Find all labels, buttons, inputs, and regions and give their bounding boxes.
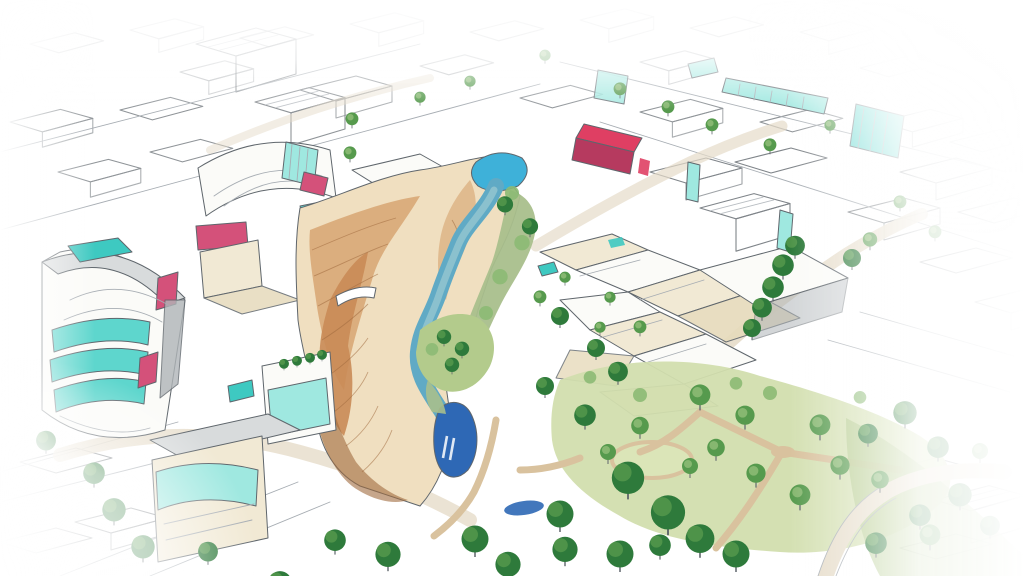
- tree-icon: [894, 195, 907, 211]
- tree-icon: [426, 343, 439, 356]
- tree-icon: [462, 526, 489, 558]
- glass-galleria-strip: [594, 58, 904, 252]
- tree-icon: [824, 120, 835, 134]
- tree-icon: [559, 272, 570, 286]
- left-curved-tower: [42, 238, 185, 438]
- tree-icon: [730, 377, 743, 390]
- plaza: [771, 446, 795, 458]
- tree-icon: [83, 462, 105, 487]
- tree-icon: [514, 235, 529, 250]
- pond-glimpse: [503, 498, 545, 517]
- concept-rendering: Hand-drawn aerial concept sketch: urban …: [0, 0, 1024, 576]
- tree-icon: [929, 225, 942, 241]
- tree-icon: [534, 290, 547, 306]
- village-pool-icon: [538, 262, 558, 276]
- tree-icon: [344, 146, 357, 162]
- tree-icon: [198, 542, 218, 565]
- tree-icon: [552, 537, 577, 566]
- tree-icon: [492, 269, 507, 284]
- tree-icon: [584, 371, 597, 384]
- block-row-far: [30, 9, 1024, 95]
- tree-icon: [36, 431, 56, 454]
- tree-icon: [723, 541, 750, 573]
- fade-top: [0, 0, 1024, 110]
- tree-icon: [551, 307, 569, 328]
- tree-icon: [102, 498, 125, 525]
- tree-icon: [763, 386, 777, 400]
- crimson-building: [572, 124, 650, 176]
- side-pool-icon: [228, 380, 254, 402]
- promenade-street: [536, 126, 782, 246]
- tree-icon: [414, 92, 425, 106]
- tree-icon: [375, 542, 400, 571]
- tree-icon: [495, 552, 520, 576]
- tree-icon: [346, 112, 359, 128]
- tree-icon: [547, 501, 574, 533]
- tree-icon: [539, 50, 550, 64]
- lower-pond: [434, 402, 477, 477]
- tree-icon: [854, 391, 867, 404]
- sketch-canvas: Hand-drawn aerial concept sketch: urban …: [0, 0, 1024, 576]
- pink-accent-strip-2: [138, 352, 158, 388]
- tree-icon: [479, 306, 493, 320]
- tree-icon: [268, 571, 291, 576]
- galleria-end-glass: [850, 104, 904, 158]
- tree-icon: [706, 118, 719, 134]
- tree-icon: [686, 524, 715, 558]
- tree-icon: [633, 388, 647, 402]
- tree-icon: [324, 529, 346, 554]
- tree-icon: [607, 541, 634, 573]
- tree-icon: [649, 534, 671, 559]
- tree-icon: [536, 377, 554, 398]
- tree-icon: [972, 443, 988, 463]
- tree-icon: [464, 76, 475, 90]
- tree-icon: [843, 249, 861, 270]
- tree-icon: [131, 535, 154, 562]
- tree-icon: [662, 100, 675, 116]
